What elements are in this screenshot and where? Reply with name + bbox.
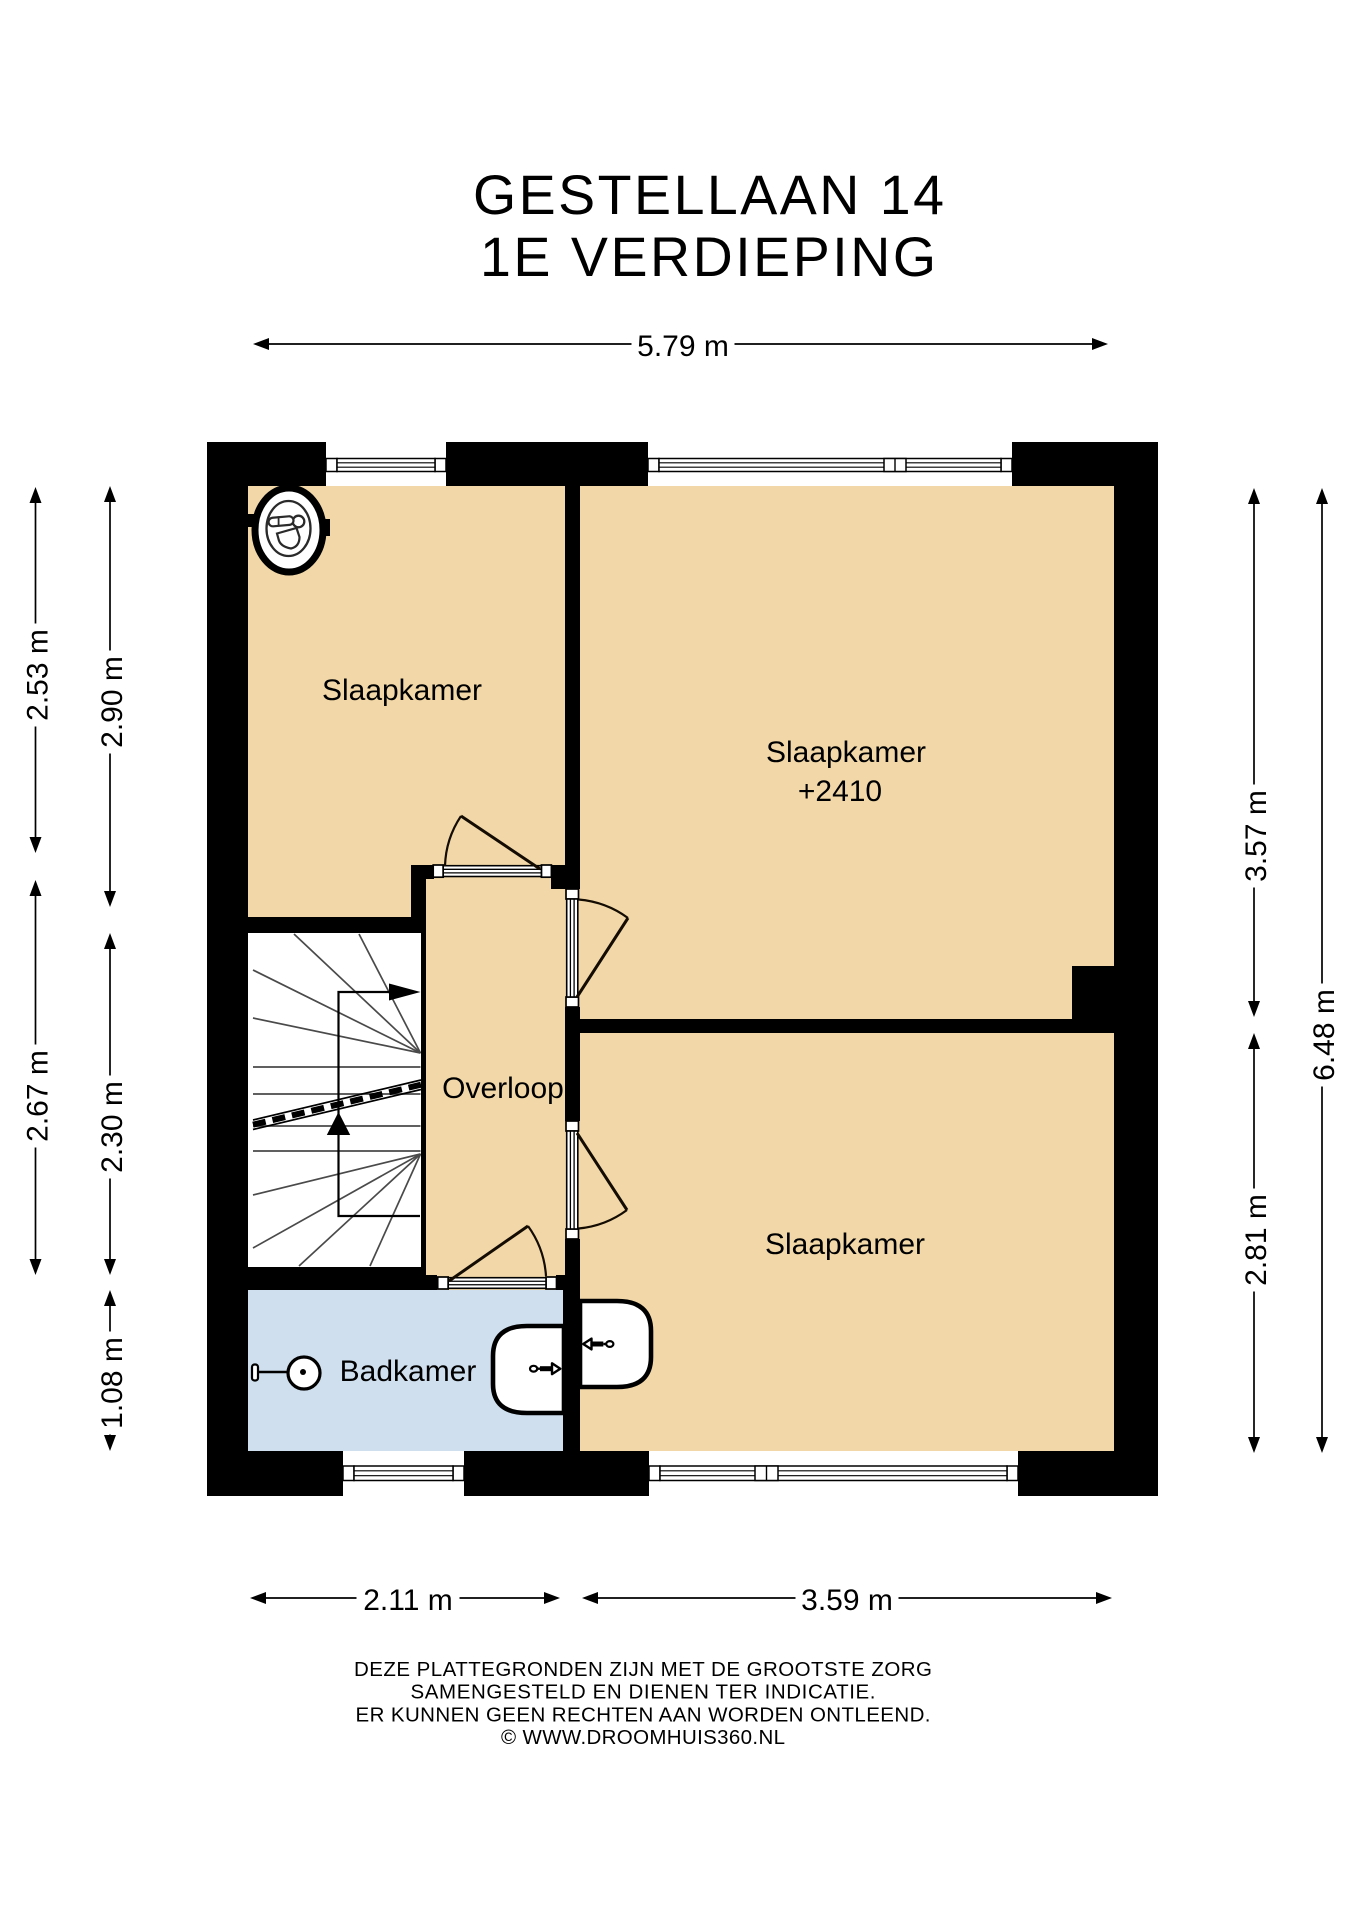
svg-text:Overloop: Overloop <box>442 1072 564 1105</box>
svg-text:SAMENGESTELD EN DIENEN TER IND: SAMENGESTELD EN DIENEN TER INDICATIE. <box>411 1681 876 1704</box>
svg-text:1.08 m: 1.08 m <box>96 1337 129 1429</box>
svg-text:© WWW.DROOMHUIS360.NL: © WWW.DROOMHUIS360.NL <box>501 1726 785 1749</box>
svg-text:ER KUNNEN GEEN RECHTEN AAN WOR: ER KUNNEN GEEN RECHTEN AAN WORDEN ONTLEE… <box>356 1703 931 1726</box>
svg-text:5.79 m: 5.79 m <box>637 330 729 363</box>
svg-text:+2410: +2410 <box>798 775 882 808</box>
svg-text:Slaapkamer: Slaapkamer <box>322 674 482 707</box>
svg-text:Slaapkamer: Slaapkamer <box>765 1228 925 1261</box>
svg-text:2.11 m: 2.11 m <box>363 1584 453 1617</box>
svg-text:2.81 m: 2.81 m <box>1240 1194 1273 1286</box>
svg-text:2.90 m: 2.90 m <box>96 656 129 748</box>
svg-text:2.30 m: 2.30 m <box>96 1081 129 1173</box>
svg-text:2.53 m: 2.53 m <box>22 629 55 721</box>
svg-text:Slaapkamer: Slaapkamer <box>766 736 926 769</box>
svg-text:DEZE PLATTEGRONDEN ZIJN MET DE: DEZE PLATTEGRONDEN ZIJN MET DE GROOTSTE … <box>354 1658 932 1681</box>
svg-text:GESTELLAAN 14: GESTELLAAN 14 <box>473 164 944 226</box>
svg-text:3.59 m: 3.59 m <box>801 1584 893 1617</box>
svg-text:Badkamer: Badkamer <box>340 1355 477 1388</box>
svg-text:6.48 m: 6.48 m <box>1308 989 1341 1081</box>
svg-text:2.67 m: 2.67 m <box>22 1050 55 1142</box>
svg-text:3.57 m: 3.57 m <box>1240 790 1273 882</box>
svg-text:1E VERDIEPING: 1E VERDIEPING <box>480 226 936 288</box>
